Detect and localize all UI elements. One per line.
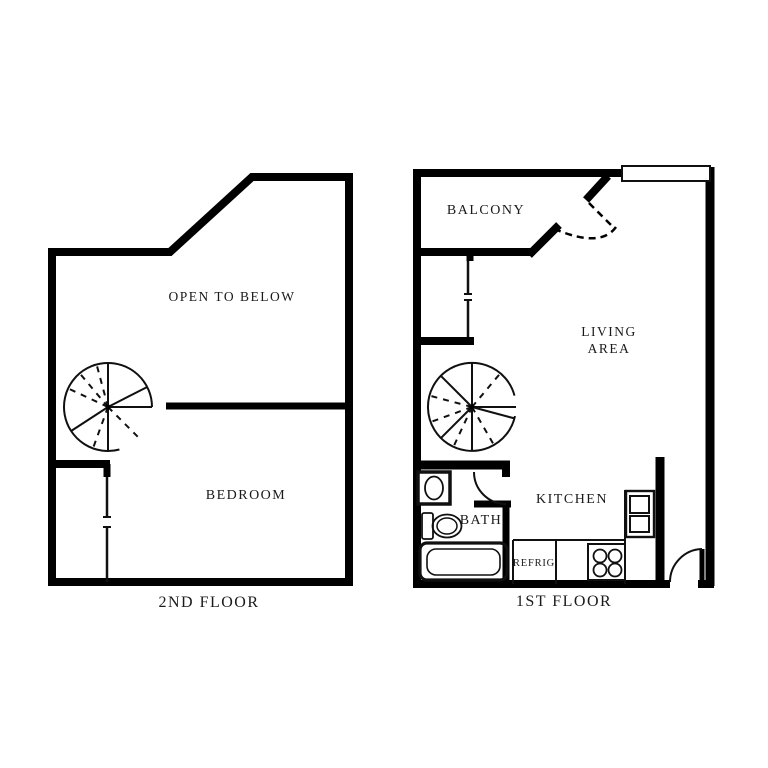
stair-center-post	[470, 405, 475, 410]
open-to-below-label: OPEN TO BELOW	[169, 289, 296, 304]
spiral-staircase-icon	[64, 363, 152, 451]
sink-icon	[418, 472, 450, 504]
second-floor-outer-wall	[52, 177, 349, 582]
stove-burner	[594, 564, 607, 577]
entry-closet-wall	[413, 250, 474, 341]
floor-plan-diagram: OPEN TO BELOW BEDROOM 2ND FLOOR	[0, 0, 768, 768]
balcony-label: BALCONY	[447, 203, 525, 218]
oven-cabinet-icon	[626, 491, 654, 537]
first-floor-title: 1ST FLOOR	[516, 593, 612, 610]
toilet-tank	[422, 513, 433, 539]
balcony-door-arc	[557, 227, 616, 238]
stove-burner	[609, 550, 622, 563]
refrigerator-label: REFRIG	[513, 558, 555, 569]
toilet-bowl-inner	[437, 518, 457, 534]
balcony-diagonal-wall-upper	[586, 176, 608, 200]
balcony-door-leaf	[589, 203, 614, 228]
closet-door-jamb	[464, 294, 472, 300]
window-frame	[622, 166, 710, 181]
closet-door-jamb	[103, 517, 111, 527]
first-floor-left-top-wall	[417, 173, 626, 584]
entry-door-swing-icon	[670, 549, 702, 582]
toilet-icon	[422, 513, 462, 539]
spiral-staircase-icon	[428, 363, 516, 451]
first-floor-plan: BALCONY LIVING AREA KITCHEN BATH REFRIG …	[413, 166, 714, 610]
second-floor-plan: OPEN TO BELOW BEDROOM 2ND FLOOR	[48, 177, 349, 611]
bathtub-basin	[427, 549, 500, 575]
living-area-label-line1: LIVING	[581, 324, 637, 339]
bath-door-swing-icon	[474, 472, 506, 504]
oven-lower-box	[630, 516, 649, 532]
closet-wall	[48, 464, 111, 582]
bathtub-icon	[420, 543, 507, 580]
oven-upper-box	[630, 496, 649, 513]
kitchen-label: KITCHEN	[536, 492, 608, 507]
stove-icon	[588, 544, 625, 580]
stair-center-post	[106, 405, 111, 410]
entry-door-arc	[670, 549, 702, 582]
balcony-diagonal-wall	[529, 225, 559, 255]
bath-label: BATH	[460, 513, 503, 528]
window-icon	[622, 166, 710, 181]
floor-plan-page: OPEN TO BELOW BEDROOM 2ND FLOOR	[0, 0, 768, 768]
balcony-door-swing-icon	[557, 203, 616, 238]
living-area-label-line2: AREA	[588, 341, 631, 356]
second-floor-title: 2ND FLOOR	[158, 594, 259, 611]
bedroom-label: BEDROOM	[206, 488, 287, 503]
stove-burner	[609, 564, 622, 577]
stove-burner	[594, 550, 607, 563]
